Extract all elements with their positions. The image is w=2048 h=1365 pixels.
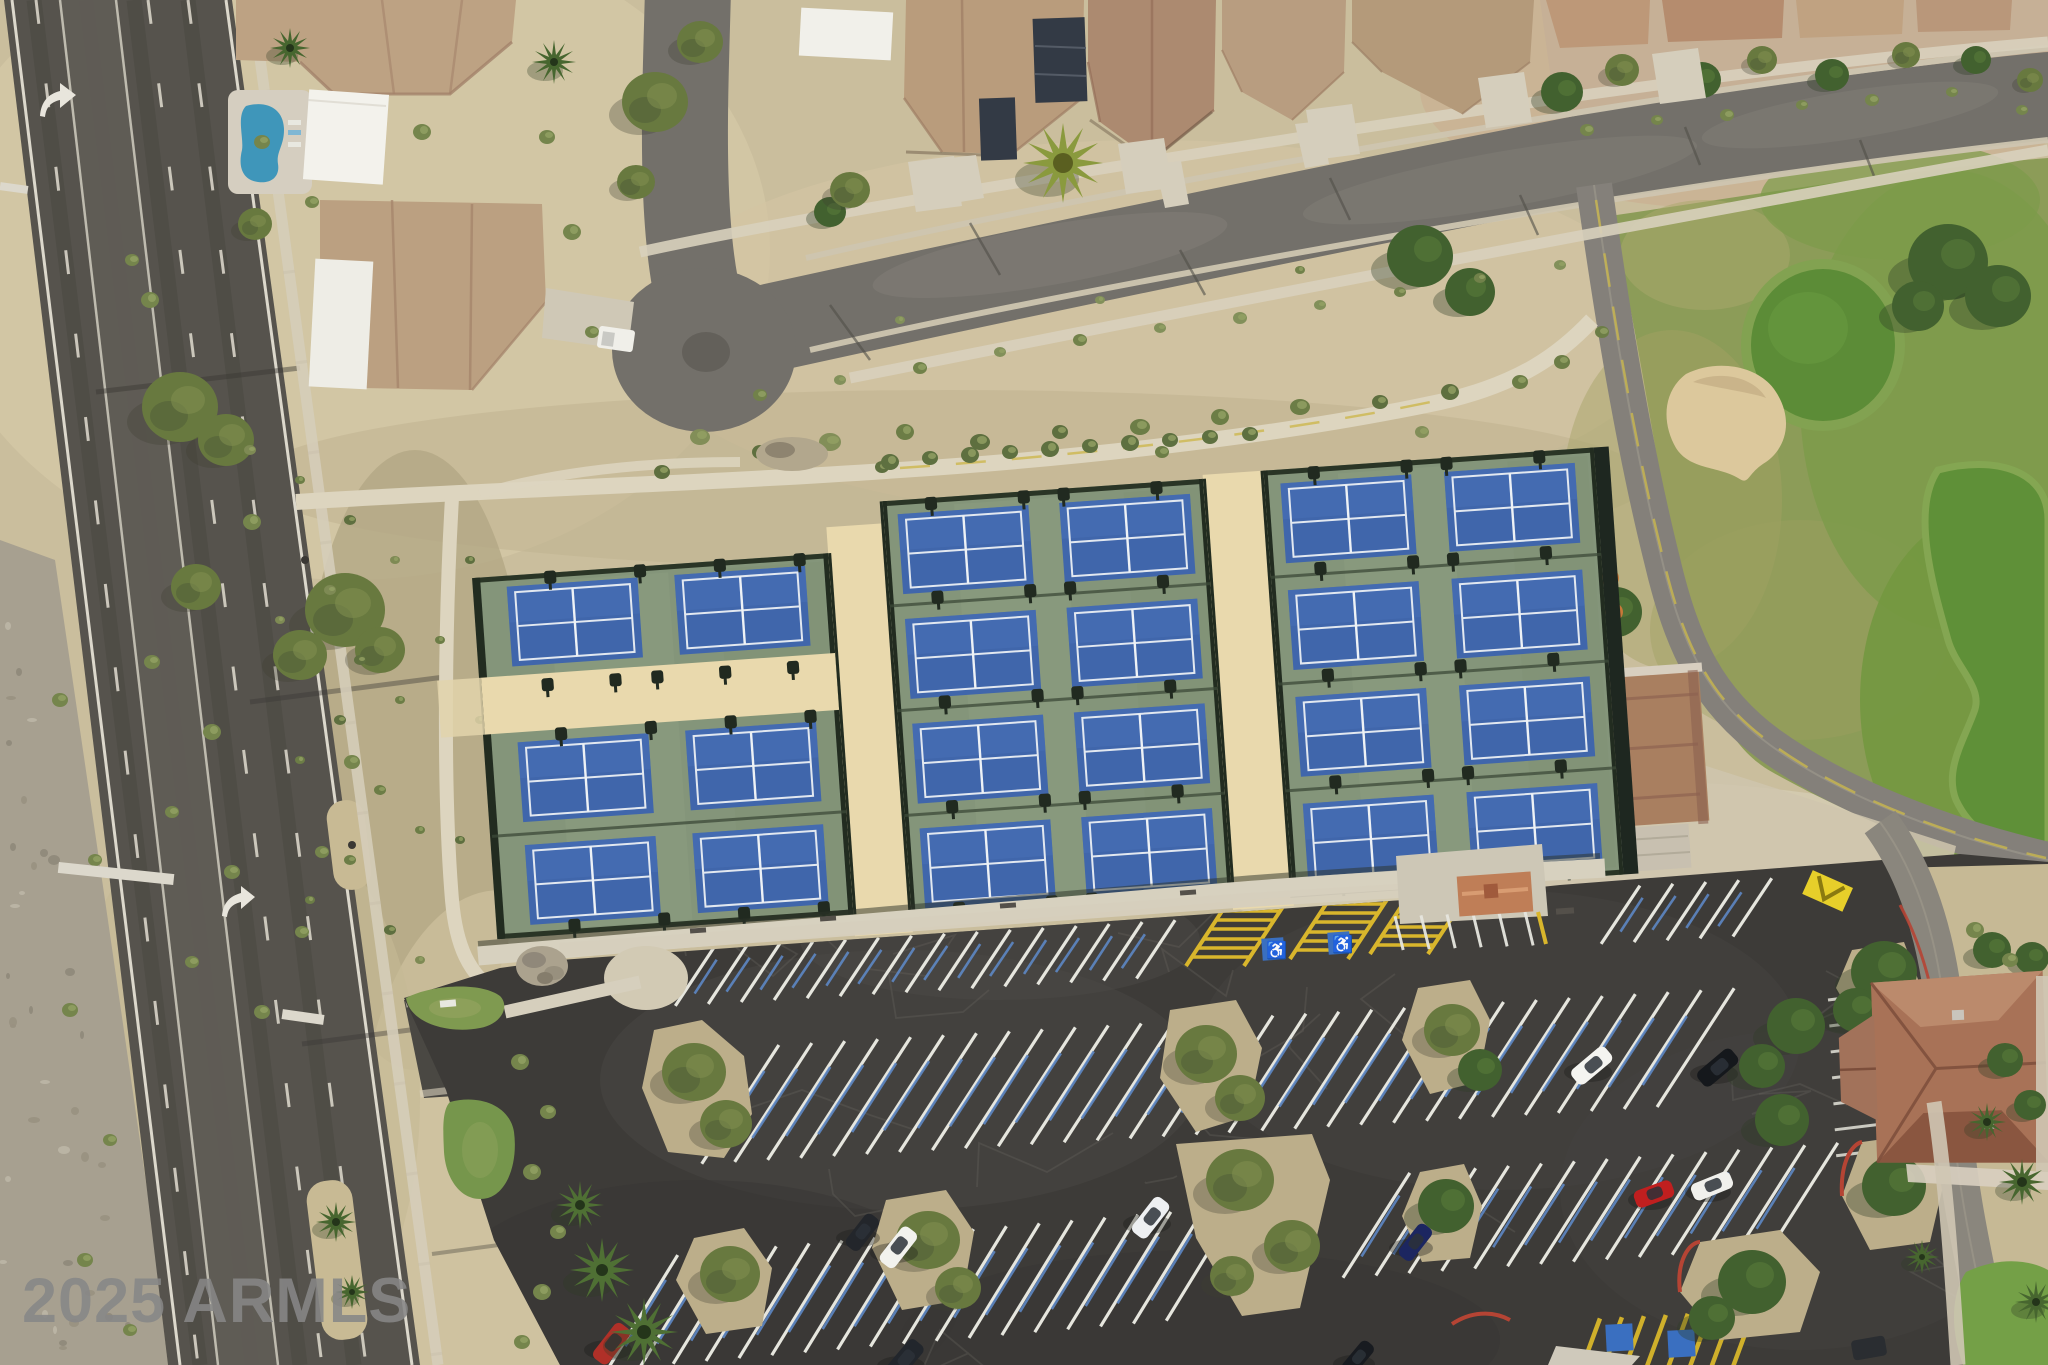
svg-text:2025 ARMLS: 2025 ARMLS: [22, 1266, 411, 1336]
svg-text:♿: ♿: [1332, 934, 1353, 954]
svg-text:♿: ♿: [1266, 940, 1287, 960]
